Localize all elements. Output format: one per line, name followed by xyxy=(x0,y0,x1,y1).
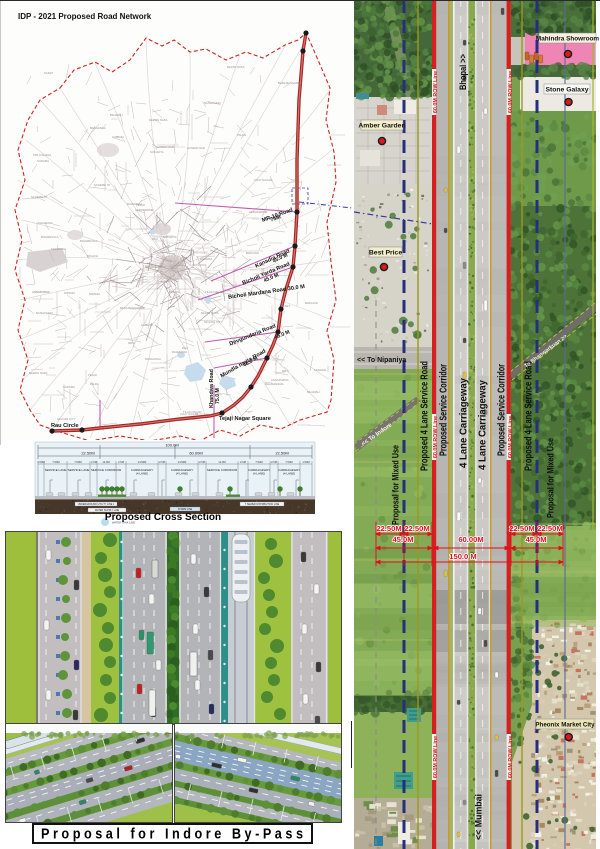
svg-text:KANADIA: KANADIA xyxy=(314,368,326,372)
svg-text:BANGANGA: BANGANGA xyxy=(145,357,161,361)
svg-text:RAU: RAU xyxy=(152,237,158,241)
svg-text:<< To Nipaniya: << To Nipaniya xyxy=(357,357,406,364)
svg-text:SERVICE CORRIDOR: SERVICE CORRIDOR xyxy=(207,468,238,472)
svg-text:MHOW NAKA: MHOW NAKA xyxy=(201,311,219,315)
svg-text:2.5M: 2.5M xyxy=(271,460,277,464)
svg-text:60.00M: 60.00M xyxy=(458,535,483,544)
svg-text:BICHOLI: BICHOLI xyxy=(87,254,98,258)
svg-text:Amber Garden: Amber Garden xyxy=(358,123,405,130)
svg-text:2.0M: 2.0M xyxy=(91,460,97,464)
svg-text:RALAMANDAL: RALAMANDAL xyxy=(265,382,284,386)
svg-text:60.0M ROW Line: 60.0M ROW Line xyxy=(508,71,514,113)
svg-text:MR 9: MR 9 xyxy=(128,341,135,345)
svg-text:MHOW NAKA: MHOW NAKA xyxy=(227,65,245,69)
svg-text:BHICHOLI: BHICHOLI xyxy=(305,301,318,305)
svg-text:TILAK NAGAR: TILAK NAGAR xyxy=(183,410,202,414)
svg-text:7.50M: 7.50M xyxy=(52,460,59,464)
svg-text:60.0M ROW Line: 60.0M ROW Line xyxy=(508,416,514,458)
svg-text:BADA BANGARDA: BADA BANGARDA xyxy=(278,81,302,85)
svg-text:BHAWRASLA: BHAWRASLA xyxy=(41,235,59,239)
svg-text:75.0 M: 75.0 M xyxy=(215,388,221,404)
svg-text:P r o p o s a l f o r I n: P r o p o s a l f o r I n d o r e B y - … xyxy=(41,827,303,843)
svg-text:60.0M ROW Line: 60.0M ROW Line xyxy=(433,71,439,113)
svg-text:SUKHLIYA: SUKHLIYA xyxy=(163,235,177,239)
svg-text:Proposed Service Corridor: Proposed Service Corridor xyxy=(497,364,508,456)
svg-text:PALDA: PALDA xyxy=(237,133,246,137)
svg-text:LIMBODI: LIMBODI xyxy=(112,135,124,139)
svg-text:STORM LINE: STORM LINE xyxy=(178,508,193,511)
svg-text:22.50M: 22.50M xyxy=(376,524,401,533)
svg-text:Proposal for Mixed Use: Proposal for Mixed Use xyxy=(391,445,402,525)
svg-text:PALDA: PALDA xyxy=(90,382,99,386)
svg-text:(4 LANE): (4 LANE) xyxy=(136,472,148,476)
svg-text:22.50M: 22.50M xyxy=(81,451,94,456)
svg-text:SAKET: SAKET xyxy=(281,304,290,308)
svg-text:ANNAPURNA: ANNAPURNA xyxy=(32,290,50,294)
svg-text:Best Price: Best Price xyxy=(369,250,402,257)
svg-text:Proposal for Mixed Use: Proposal for Mixed Use xyxy=(546,438,557,518)
svg-text:1.50M: 1.50M xyxy=(302,460,309,464)
svg-text:100.0M: 100.0M xyxy=(165,443,178,448)
svg-text:DEWAS NAKA: DEWAS NAKA xyxy=(29,371,48,375)
svg-text:TILAK NAGAR: TILAK NAGAR xyxy=(205,290,224,294)
svg-text:12.0M: 12.0M xyxy=(102,460,109,464)
svg-text:12.0M: 12.0M xyxy=(218,460,225,464)
svg-text:2.0M: 2.0M xyxy=(240,460,246,464)
svg-text:45.0M: 45.0M xyxy=(392,535,413,544)
svg-text:BILAWALI: BILAWALI xyxy=(110,113,123,117)
svg-text:(4 LANE): (4 LANE) xyxy=(253,472,265,476)
svg-text:60.0M ROW Line: 60.0M ROW Line xyxy=(433,736,439,778)
svg-text:MR 9: MR 9 xyxy=(282,369,289,373)
svg-text:BHICHOLI: BHICHOLI xyxy=(246,251,259,255)
svg-text:60.00M: 60.00M xyxy=(189,451,202,456)
svg-text:GANDHI NGR: GANDHI NGR xyxy=(156,145,174,149)
svg-text:2.5M: 2.5M xyxy=(118,460,124,464)
svg-text:45.0M: 45.0M xyxy=(525,535,546,544)
svg-text:4 Lane Carriageway: 4 Lane Carriageway xyxy=(459,378,470,468)
svg-text:DEWAS NAKA: DEWAS NAKA xyxy=(149,118,168,122)
svg-text:SUDAMA: SUDAMA xyxy=(37,159,49,163)
svg-text:BHAWRASLA: BHAWRASLA xyxy=(80,239,98,243)
svg-text:MUSAKHEDI: MUSAKHEDI xyxy=(204,101,221,105)
svg-text:2.5M: 2.5M xyxy=(199,460,205,464)
svg-text:Mahindra Showroom: Mahindra Showroom xyxy=(536,36,600,43)
svg-text:RALAMANDAL: RALAMANDAL xyxy=(145,264,164,268)
svg-text:VIJAY NAGAR: VIJAY NAGAR xyxy=(254,178,272,182)
svg-text:SERVICE LANE: SERVICE LANE xyxy=(45,468,67,472)
svg-text:60.0M ROW Line: 60.0M ROW Line xyxy=(508,736,514,778)
svg-text:KANADIA: KANADIA xyxy=(200,257,212,261)
svg-text:SUDAMA: SUDAMA xyxy=(63,385,75,389)
svg-text:7.50M: 7.50M xyxy=(285,460,292,464)
svg-text:4 Lane Carriageway: 4 Lane Carriageway xyxy=(478,380,489,470)
svg-text:SUKHLIYA: SUKHLIYA xyxy=(150,150,164,154)
svg-text:Tejaji Nagar Square: Tejaji Nagar Square xyxy=(219,416,271,422)
svg-text:TEJAJI: TEJAJI xyxy=(136,203,145,207)
svg-text:Proposed Service Corridor: Proposed Service Corridor xyxy=(439,364,450,456)
svg-text:RAJENDRA: RAJENDRA xyxy=(172,350,187,354)
svg-text:(4 LANE): (4 LANE) xyxy=(176,472,188,476)
svg-text:NIPANIA: NIPANIA xyxy=(89,292,100,296)
svg-text:14.50M: 14.50M xyxy=(138,460,147,464)
svg-text:2.5M: 2.5M xyxy=(159,460,165,464)
svg-text:KHAJRANA: KHAJRANA xyxy=(51,247,66,251)
svg-text:KHAJRANA: KHAJRANA xyxy=(38,221,53,225)
svg-text:SERVICE LANE: SERVICE LANE xyxy=(68,468,90,472)
svg-text:BILAWALI: BILAWALI xyxy=(307,390,320,394)
svg-text:AERODROME: AERODROME xyxy=(135,208,153,212)
svg-text:150.0 M: 150.0 M xyxy=(449,552,476,561)
svg-text:BICHOLI: BICHOLI xyxy=(169,290,180,294)
svg-text:SCHEME 78: SCHEME 78 xyxy=(31,195,47,199)
svg-text:Proposed 4 Lane Service Road: Proposed 4 Lane Service Road xyxy=(524,361,535,471)
svg-text:SILICON CITY: SILICON CITY xyxy=(204,320,222,324)
svg-text:AERODROME: AERODROME xyxy=(249,210,267,214)
svg-text:UNDERGROUND UTILITY LINE 1: UNDERGROUND UTILITY LINE 1 xyxy=(78,503,115,506)
svg-text:T SEWER DISTRIBUTION LINE: T SEWER DISTRIBUTION LINE xyxy=(245,503,280,506)
svg-text:NIPANIA: NIPANIA xyxy=(64,291,75,295)
svg-text:Bhopal >>: Bhopal >> xyxy=(458,54,469,90)
svg-text:Rau Circle: Rau Circle xyxy=(51,423,79,429)
svg-text:SCHEME 78: SCHEME 78 xyxy=(94,183,110,187)
svg-text:Proposed 4 Lane Service Road: Proposed 4 Lane Service Road xyxy=(420,361,431,471)
svg-text:SERVICE CORRIDOR: SERVICE CORRIDOR xyxy=(91,468,122,472)
svg-text:7.50M: 7.50M xyxy=(255,460,262,464)
svg-text:BANGANGA: BANGANGA xyxy=(90,126,106,130)
svg-text:PIPLIYAHANA: PIPLIYAHANA xyxy=(33,153,51,157)
svg-text:Pheonix Market City: Pheonix Market City xyxy=(535,722,595,729)
svg-text:22.50M: 22.50M xyxy=(509,524,534,533)
svg-text:22.50M: 22.50M xyxy=(275,451,288,456)
svg-text:<< Mumbai: << Mumbai xyxy=(474,794,485,840)
svg-text:(4 LANE): (4 LANE) xyxy=(283,472,295,476)
svg-text:TEJAJI: TEJAJI xyxy=(88,373,97,377)
svg-text:LIMBODI: LIMBODI xyxy=(141,323,153,327)
svg-text:22.50M: 22.50M xyxy=(537,524,562,533)
svg-text:BADA BANGARDA: BADA BANGARDA xyxy=(120,306,144,310)
svg-text:PIPLIYAHANA: PIPLIYAHANA xyxy=(245,358,263,362)
svg-text:MUSAKHEDI: MUSAKHEDI xyxy=(36,311,53,315)
svg-text:SAKET: SAKET xyxy=(44,71,53,75)
svg-text:SILICON CITY: SILICON CITY xyxy=(57,417,75,421)
svg-text:22.50M: 22.50M xyxy=(404,524,429,533)
svg-text:14.50M: 14.50M xyxy=(178,460,187,464)
svg-text:Stone Galaxy: Stone Galaxy xyxy=(545,87,588,94)
svg-text:1.50M: 1.50M xyxy=(37,460,44,464)
svg-text:GANDHI NGR: GANDHI NGR xyxy=(187,146,205,150)
svg-text:7.50M: 7.50M xyxy=(74,460,81,464)
